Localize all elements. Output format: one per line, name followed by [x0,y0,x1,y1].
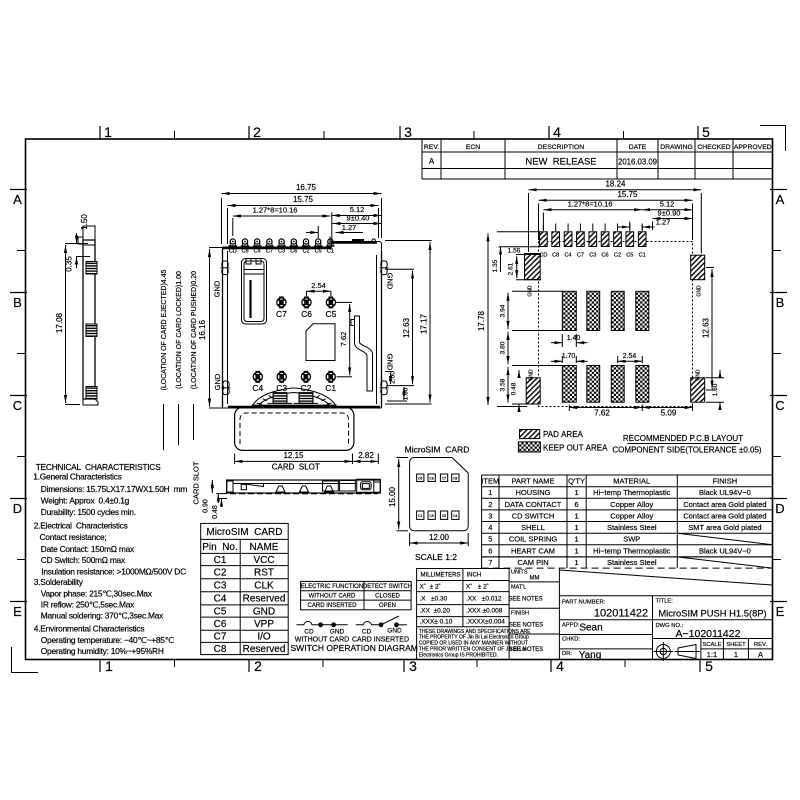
svg-text:CARD INSERTED: CARD INSERTED [308,603,358,609]
svg-text:CLK: CLK [254,581,274,592]
svg-text:Hi−temp Thermoplastic: Hi−temp Thermoplastic [593,547,671,556]
svg-text:ECN: ECN [466,144,480,151]
svg-text:C7: C7 [442,477,446,481]
svg-text:.X ±0.30: .X ±0.30 [420,596,448,603]
svg-text:HOUSING: HOUSING [515,488,550,497]
svg-text:1: 1 [575,511,579,520]
svg-text:SHEET: SHEET [726,642,746,648]
svg-text:1.50: 1.50 [80,214,89,230]
svg-text:C3: C3 [214,581,227,592]
svg-text:2.54: 2.54 [311,281,326,290]
svg-text:.XXXX±0.004: .XXXX±0.004 [466,619,505,626]
svg-text:2016.03.09: 2016.03.09 [618,158,657,167]
svg-text:A: A [758,650,763,659]
svg-text:C1: C1 [639,253,646,259]
svg-text:Insulation resistance: >1000MΩ: Insulation resistance: >1000MΩ/500V DC [41,567,186,577]
svg-text:0.90: 0.90 [203,499,210,513]
svg-text:C1: C1 [327,249,334,255]
svg-text:WITHOUT CARD: WITHOUT CARD [309,594,356,600]
svg-text:REV.: REV. [424,144,439,151]
svg-text:C7: C7 [577,253,584,259]
svg-text:B: B [13,295,22,310]
svg-text:GND: GND [387,628,402,635]
svg-text:Dimensions: 15.75LX17.17WX1.50: Dimensions: 15.75LX17.17WX1.50H mm [41,484,188,494]
svg-text:1: 1 [575,535,579,544]
svg-text:OPEN: OPEN [379,603,396,609]
svg-text:MATERIAL: MATERIAL [613,477,650,486]
svg-text:15.75: 15.75 [293,195,314,204]
svg-text:1: 1 [575,523,579,532]
svg-text:Operating temperature: −40℃~+8: Operating temperature: −40℃~+85℃ [41,635,174,645]
svg-text:Contact area Gold plated: Contact area Gold plated [683,500,766,509]
svg-text:COIL SPRING: COIL SPRING [509,535,558,544]
svg-text:18.24: 18.24 [605,180,626,189]
svg-text:.XXX± 0.10: .XXX± 0.10 [420,619,453,626]
svg-text:C: C [13,398,22,413]
svg-text:1.27: 1.27 [342,223,357,232]
svg-text:MILLIMETERS: MILLIMETERS [421,573,461,579]
svg-text:CD: CD [229,249,237,255]
svg-text:GND: GND [697,285,703,297]
svg-text:SWITCH OPERATION DIAGRAM: SWITCH OPERATION DIAGRAM [291,643,418,653]
svg-text:Electronics Group IS PROHIBITE: Electronics Group IS PROHIBITED. [419,652,498,658]
svg-text:VCC: VCC [253,555,274,566]
svg-text:KEEP OUT AREA: KEEP OUT AREA [543,444,608,453]
svg-text:A: A [13,192,22,207]
svg-text:C8: C8 [241,249,248,255]
svg-text:12.15: 12.15 [283,451,304,460]
svg-text:.XXX ±0.008: .XXX ±0.008 [466,608,503,615]
svg-text:A−102011422: A−102011422 [676,628,741,640]
svg-text:C2: C2 [300,383,311,393]
svg-text:ITEM: ITEM [481,477,499,486]
svg-text:2.Electrical Characteristics: 2.Electrical Characteristics [34,521,128,531]
svg-text:5: 5 [488,535,492,544]
svg-text:FINISH: FINISH [511,611,529,617]
svg-text:SMT area Gold plated: SMT area Gold plated [688,523,761,532]
svg-text:SHELL: SHELL [521,523,545,532]
svg-text:5: 5 [705,658,713,674]
svg-text:A: A [429,157,435,166]
svg-text:2.54: 2.54 [623,353,637,360]
svg-text:I/O: I/O [257,632,271,643]
svg-text:3: 3 [409,658,417,674]
svg-text:1: 1 [105,658,113,674]
svg-text:12.63: 12.63 [402,317,411,338]
svg-text:ELECTRIC FUNCTION: ELECTRIC FUNCTION [301,584,363,590]
svg-text:MM: MM [530,576,540,582]
svg-text:Black UL94V−0: Black UL94V−0 [699,547,751,556]
svg-text:4: 4 [556,658,564,674]
svg-text:SEE NOTES: SEE NOTES [509,623,543,629]
svg-text:Copper Alloy: Copper Alloy [610,500,653,509]
svg-text:12.00: 12.00 [429,533,450,542]
svg-text:1.40: 1.40 [567,335,581,342]
svg-text:1: 1 [575,558,579,567]
svg-text:5: 5 [702,124,710,140]
svg-text:1.60: 1.60 [712,383,719,396]
svg-text:C5: C5 [315,249,322,255]
svg-text:D: D [775,501,784,516]
svg-text:C4: C4 [214,594,227,605]
svg-text:CHECKED: CHECKED [697,144,730,151]
svg-text:MicroSIM CARD: MicroSIM CARD [206,527,282,538]
svg-text:GND: GND [386,273,395,290]
svg-text:.XX ±0.20: .XX ±0.20 [420,608,451,615]
svg-text:17.08: 17.08 [55,312,64,333]
svg-text:C6: C6 [214,619,227,630]
svg-text:SEE NOTES: SEE NOTES [509,647,543,653]
svg-text:C4: C4 [453,514,457,518]
svg-text:NAME: NAME [250,542,279,553]
svg-text:1: 1 [575,547,579,556]
svg-text:C5: C5 [442,514,446,518]
svg-text:C9: C9 [430,514,434,518]
svg-text:HEART CAM: HEART CAM [511,547,555,556]
svg-text:C3: C3 [589,253,596,259]
svg-text:Black UL94V−0: Black UL94V−0 [699,488,751,497]
svg-text:0.35: 0.35 [65,256,74,272]
svg-text:A: A [776,192,785,207]
svg-text:PART NUMBER:: PART NUMBER: [562,600,606,606]
svg-text:(LOCATION OF CARD LOCKED)1.00: (LOCATION OF CARD LOCKED)1.00 [176,271,183,389]
svg-text:C6: C6 [602,253,609,259]
svg-text:Q'TY: Q'TY [568,477,585,486]
svg-text:5.09: 5.09 [661,409,677,418]
svg-text:12.63: 12.63 [702,317,711,338]
svg-text:(LOCATION OF CARD PUSHED)0.20: (LOCATION OF CARD PUSHED)0.20 [191,271,198,389]
svg-text:CLOSED: CLOSED [375,594,400,600]
svg-text:1: 1 [488,488,492,497]
svg-text:TITLE:: TITLE: [656,599,674,605]
svg-text:1.35: 1.35 [492,259,499,272]
svg-text:Date Contact: 150mΩ max: Date Contact: 150mΩ max [41,544,135,554]
svg-text:4: 4 [553,124,561,140]
svg-text:2: 2 [253,124,261,140]
svg-text:5.12: 5.12 [660,200,675,209]
svg-text:Operating humidity: 10%~+95%RH: Operating humidity: 10%~+95%RH [41,646,164,656]
svg-text:3.94: 3.94 [500,304,507,317]
svg-text:.XX ±0.012: .XX ±0.012 [466,596,502,603]
svg-text:15.75: 15.75 [617,190,638,199]
svg-text:9±0.40: 9±0.40 [347,214,370,223]
svg-text:2.00: 2.00 [390,371,397,384]
svg-text:C3: C3 [278,249,285,255]
svg-text:Contact resistance;: Contact resistance; [40,532,107,542]
svg-text:MicroSIM CARD: MicroSIM CARD [405,445,470,455]
svg-text:Reserved: Reserved [243,644,286,655]
svg-text:Reserved: Reserved [243,594,286,605]
svg-text:3.58: 3.58 [500,378,507,391]
svg-text:NEW RELEASE: NEW RELEASE [525,157,596,168]
svg-text:SCALE 1:2: SCALE 1:2 [415,552,457,562]
svg-text:2.61: 2.61 [508,262,515,275]
svg-text:E: E [13,604,22,619]
svg-text:C: C [775,398,784,413]
svg-text:C4: C4 [565,253,572,259]
svg-text:DATE: DATE [629,144,647,151]
svg-text:FINISH: FINISH [713,477,738,486]
svg-text:6: 6 [575,500,579,509]
svg-text:2.82: 2.82 [358,451,374,460]
svg-text:CHKD:: CHKD: [562,637,580,643]
svg-text:3.80: 3.80 [500,341,507,354]
svg-text:TECHNICAL CHARACTERISTICS: TECHNICAL CHARACTERISTICS [36,462,161,472]
svg-text:MAT'L: MAT'L [511,585,526,591]
svg-text:C1: C1 [418,514,422,518]
svg-text:C8: C8 [552,253,559,259]
svg-text:2: 2 [488,500,492,509]
svg-text:C8: C8 [430,477,434,481]
svg-text:C2: C2 [614,253,621,259]
svg-text:1.27*8=10.16: 1.27*8=10.16 [253,206,298,215]
svg-text:4.Environmental Characteristic: 4.Environmental Characteristics [34,624,145,634]
svg-text:D: D [13,501,22,516]
svg-text:Stainless Steel: Stainless Steel [607,558,657,567]
svg-text:16.75: 16.75 [296,183,317,192]
svg-text:CARD SLOT: CARD SLOT [272,463,320,472]
svg-text:DETECT SWITCH: DETECT SWITCH [363,584,412,590]
svg-text:C3: C3 [276,383,287,393]
svg-text:IR reflow: 250℃,5sec.Max: IR reflow: 250℃,5sec.Max [41,600,135,610]
svg-text:GND: GND [213,373,222,390]
svg-text:6: 6 [488,547,492,556]
svg-text:GND: GND [253,606,275,617]
svg-text:102011422: 102011422 [594,608,648,620]
svg-text:1.70: 1.70 [562,353,576,360]
svg-text:C5: C5 [214,606,227,617]
svg-text:17.17: 17.17 [420,313,429,334]
svg-text:C8: C8 [453,477,457,481]
svg-text:1.General Characteristics: 1.General Characteristics [33,472,121,482]
svg-text:C7: C7 [266,249,273,255]
svg-text:VPP: VPP [254,619,274,630]
svg-text:GND: GND [330,629,345,636]
svg-text:Stainless Steel: Stainless Steel [607,523,657,532]
svg-text:3: 3 [488,511,492,520]
svg-text:9±0.90: 9±0.90 [658,209,681,218]
svg-text:C6: C6 [301,309,312,319]
svg-text:CD Switch: 500mΩ max: CD Switch: 500mΩ max [41,555,126,565]
svg-text:C1: C1 [325,383,336,393]
svg-text:1.60: 1.60 [403,387,410,400]
svg-text:CARD SLOT: CARD SLOT [192,461,201,504]
svg-text:C7: C7 [276,309,287,319]
svg-text:GND: GND [529,369,535,381]
svg-text:E: E [776,604,785,619]
svg-text:SEE NOTES: SEE NOTES [508,597,542,603]
svg-text:3: 3 [404,124,412,140]
svg-text:7.62: 7.62 [339,332,348,347]
svg-text:Contact area Gold plated: Contact area Gold plated [683,511,766,520]
svg-text:C2: C2 [302,249,309,255]
svg-text:C1: C1 [214,555,227,566]
svg-text:X˚ ± 2˚: X˚ ± 2˚ [466,583,489,591]
svg-text:3.Solderability: 3.Solderability [34,577,84,587]
svg-text:Sean: Sean [579,623,602,634]
svg-text:Copper Alloy: Copper Alloy [610,511,653,520]
svg-text:Pin No.: Pin No. [202,542,238,553]
svg-text:B: B [776,295,785,310]
svg-text:DESCRIPTION: DESCRIPTION [538,144,585,151]
svg-text:CAM PIN: CAM PIN [517,558,548,567]
svg-text:C6: C6 [290,249,297,255]
svg-text:Vapor phase: 215℃,30sec.Max: Vapor phase: 215℃,30sec.Max [41,589,153,599]
svg-text:CD: CD [304,629,314,636]
svg-text:APPROVED: APPROVED [734,144,772,151]
svg-text:SWP: SWP [623,535,640,544]
svg-text:UNITS: UNITS [511,570,528,576]
svg-text:Hi−temp Thermoplastic: Hi−temp Thermoplastic [593,488,671,497]
svg-text:16.16: 16.16 [198,319,207,340]
svg-text:INCH: INCH [467,573,482,579]
svg-text:DR:: DR: [562,651,572,657]
svg-text:1.27: 1.27 [656,218,671,227]
svg-text:COMPONENT SIDE(TOLERANCE ±0.05: COMPONENT SIDE(TOLERANCE ±0.05) [612,446,761,455]
svg-text:DRAWING: DRAWING [660,144,693,151]
svg-text:4: 4 [488,523,492,532]
svg-text:C4: C4 [252,383,263,393]
svg-text:CD: CD [362,629,372,636]
svg-text:PART NAME: PART NAME [511,477,554,486]
svg-text:Yang: Yang [579,650,602,661]
svg-text:Durability: 1500 cycles min.: Durability: 1500 cycles min. [41,507,136,517]
svg-text:1.27*8=10.16: 1.27*8=10.16 [568,200,613,209]
svg-text:DATA CONTACT: DATA CONTACT [505,500,562,509]
svg-text:1:1: 1:1 [707,650,717,659]
svg-text:0.48: 0.48 [511,382,518,395]
svg-text:C4: C4 [254,249,261,255]
svg-text:1.56: 1.56 [508,248,521,255]
svg-text:RST: RST [254,567,274,578]
svg-text:15.00: 15.00 [388,486,397,507]
svg-text:0.48: 0.48 [212,505,219,519]
svg-text:PAD AREA: PAD AREA [543,430,584,439]
svg-text:MicroSIM PUSH H1.5(8P): MicroSIM PUSH H1.5(8P) [658,608,766,619]
svg-text:17.78: 17.78 [477,310,486,331]
svg-text:X˚ ± 2˚: X˚ ± 2˚ [420,583,441,591]
svg-text:2: 2 [254,658,262,674]
svg-text:C7: C7 [214,632,227,643]
svg-text:7.62: 7.62 [594,409,610,418]
svg-text:C5: C5 [626,253,633,259]
svg-text:Weight: Approx 0.4±0.1g: Weight: Approx 0.4±0.1g [41,496,130,506]
svg-text:Manual soldering: 370℃,3sec.Ma: Manual soldering: 370℃,3sec.Max [41,611,164,621]
svg-text:(LOCATION OF CARD EJECTED)4.45: (LOCATION OF CARD EJECTED)4.45 [161,269,168,390]
svg-text:C6: C6 [418,477,422,481]
svg-text:GND: GND [386,354,395,371]
svg-text:7: 7 [488,558,492,567]
svg-text:GND: GND [213,280,222,297]
svg-text:C2: C2 [214,567,227,578]
svg-text:GND: GND [696,369,702,381]
svg-text:APPD:: APPD: [562,623,580,629]
svg-text:RECOMMENDED P.C.B LAYOUT: RECOMMENDED P.C.B LAYOUT [623,434,743,443]
svg-text:1: 1 [575,488,579,497]
svg-text:C8: C8 [214,644,227,655]
svg-text:REV.: REV. [754,642,767,648]
svg-text:CD SWITCH: CD SWITCH [512,511,555,520]
svg-text:C5: C5 [325,309,336,319]
svg-text:SCALE: SCALE [702,642,721,648]
svg-text:1: 1 [734,650,738,659]
svg-text:1: 1 [104,124,112,140]
